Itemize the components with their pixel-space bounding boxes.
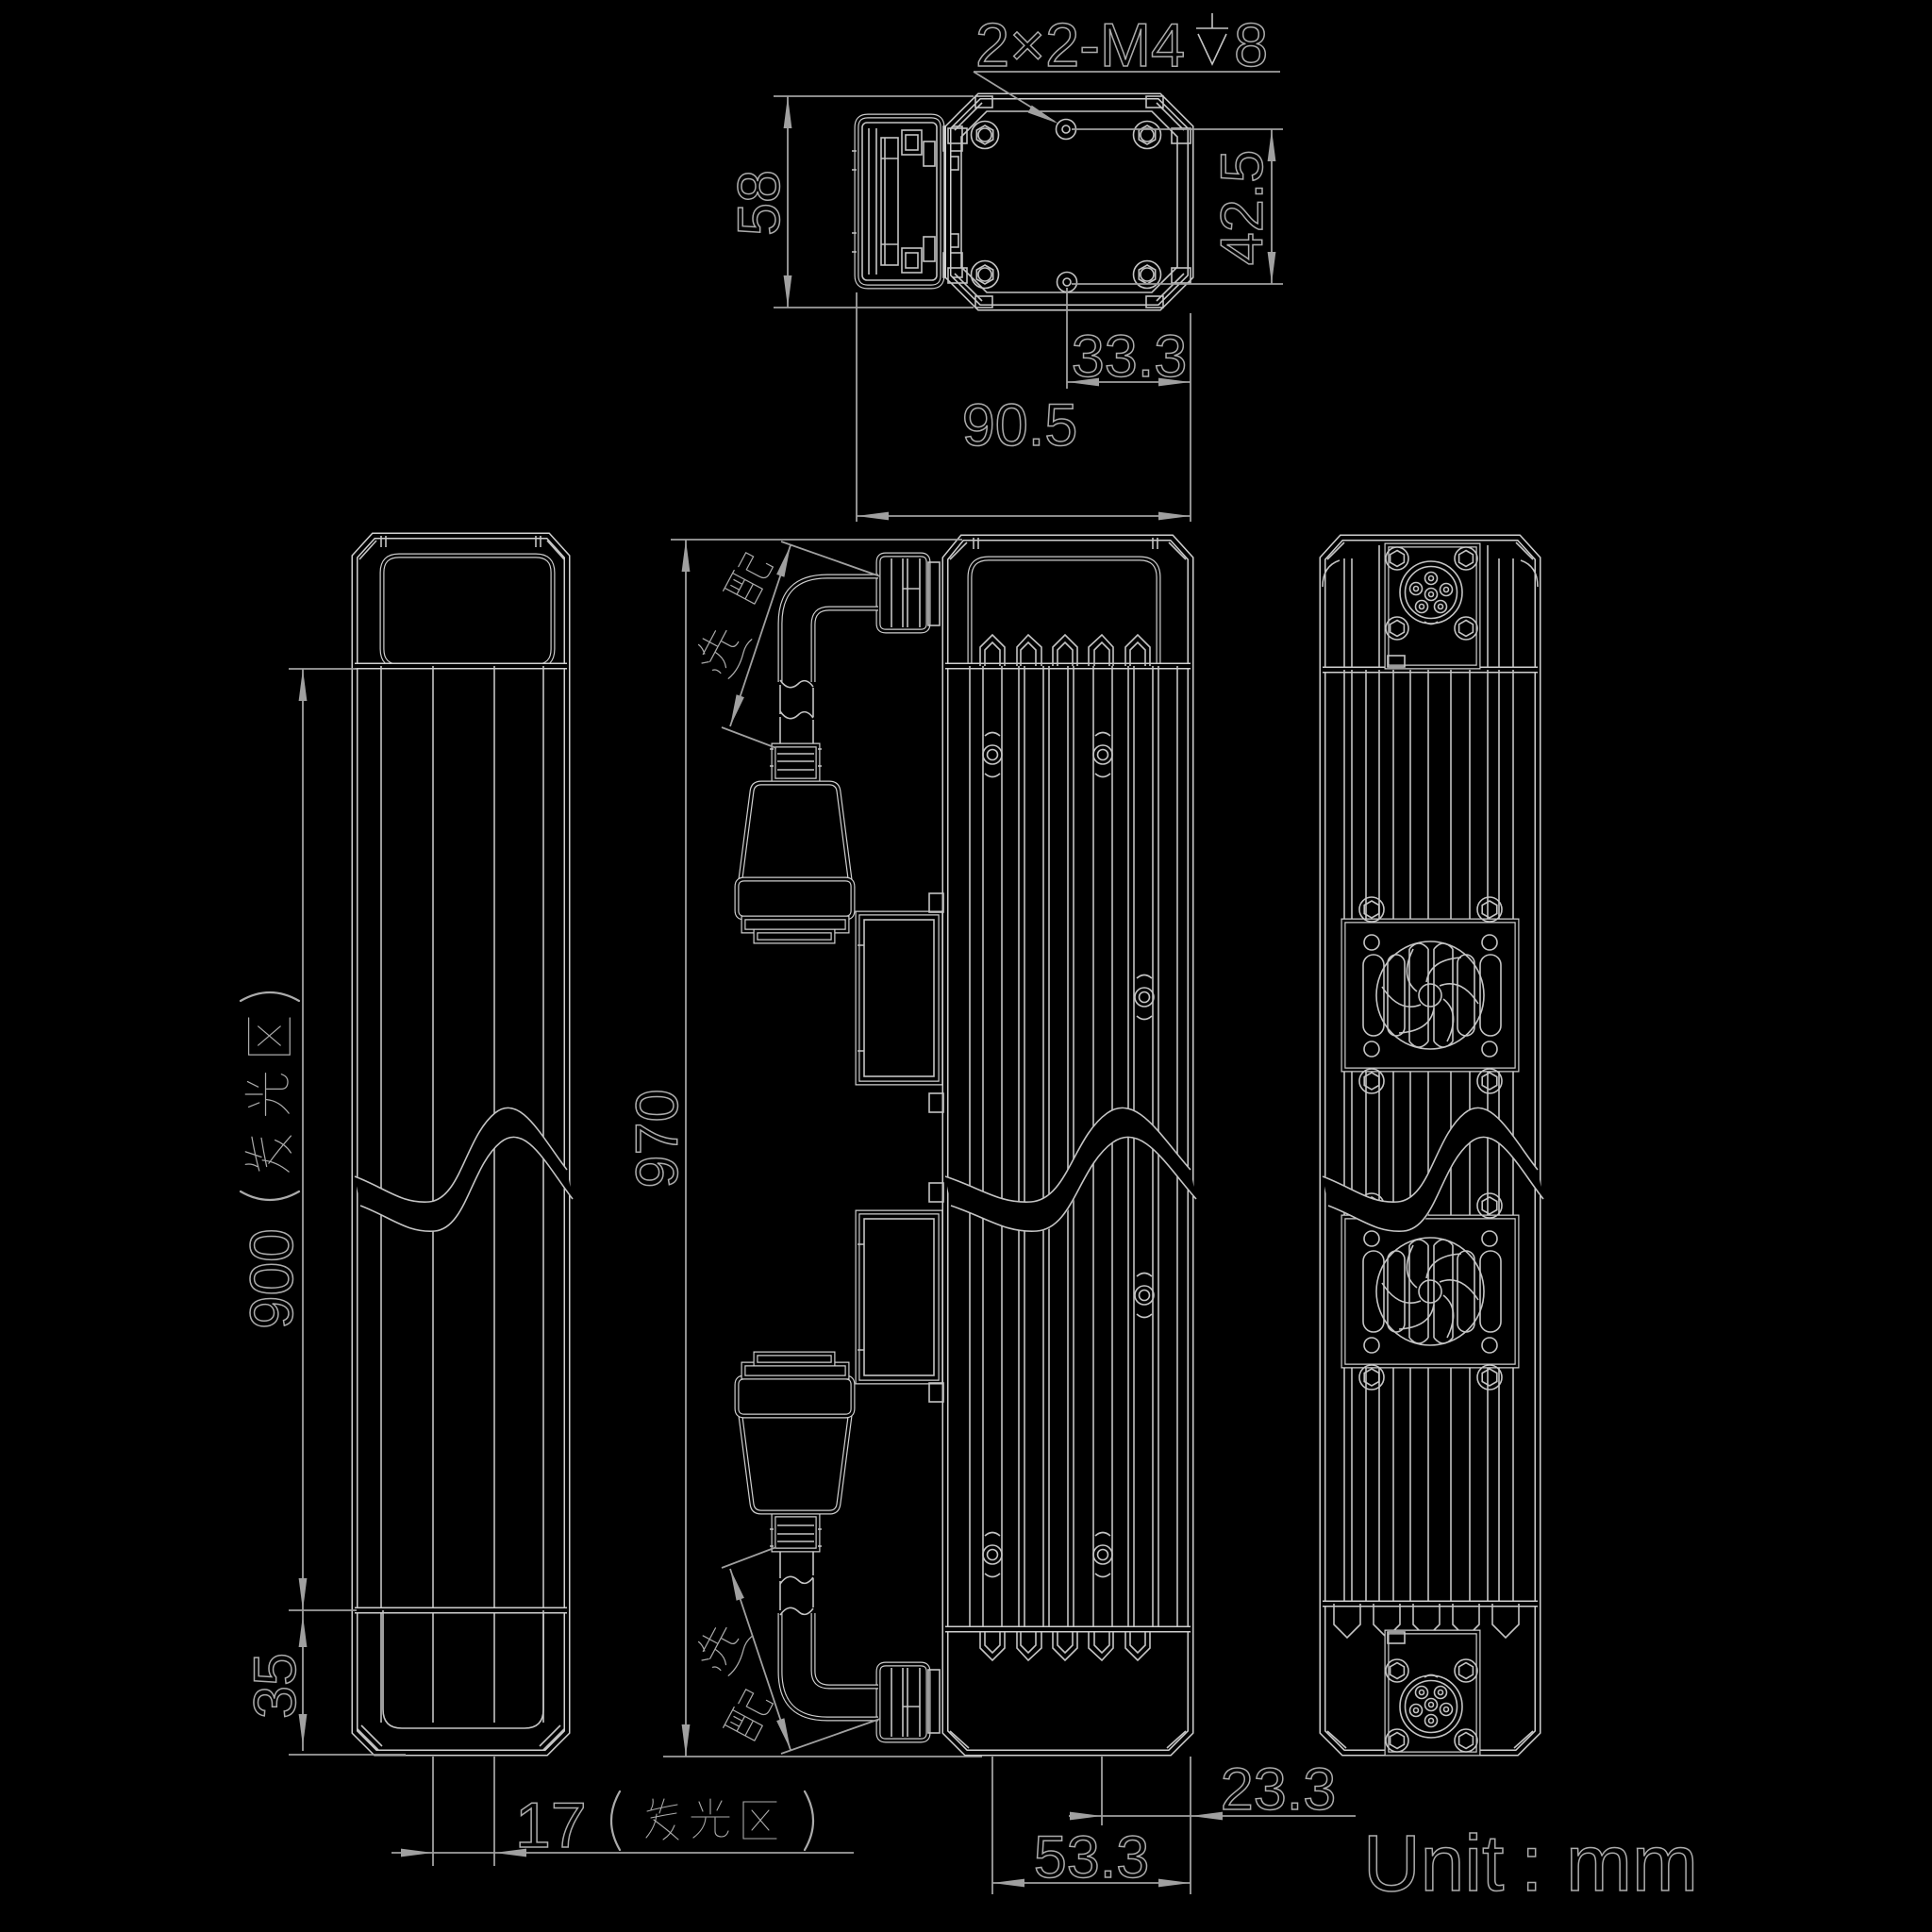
svg-text:58: 58 [726,170,792,236]
svg-text:Unit: Unit [1363,1819,1504,1907]
svg-text:mm: mm [1566,1819,1698,1907]
svg-text:23.3: 23.3 [1221,1757,1337,1823]
svg-text:53.3: 53.3 [1034,1824,1150,1890]
svg-text::: : [1521,1819,1542,1907]
svg-text:2×2-M4: 2×2-M4 [975,10,1185,79]
svg-text:900: 900 [238,1228,306,1329]
svg-text:970: 970 [625,1089,691,1188]
svg-text:35: 35 [242,1653,308,1719]
svg-text:90.5: 90.5 [962,392,1078,458]
svg-text:42.5: 42.5 [1209,150,1275,266]
svg-text:33.3: 33.3 [1072,324,1188,390]
svg-text:8: 8 [1234,10,1268,79]
svg-text:17: 17 [515,1790,587,1861]
